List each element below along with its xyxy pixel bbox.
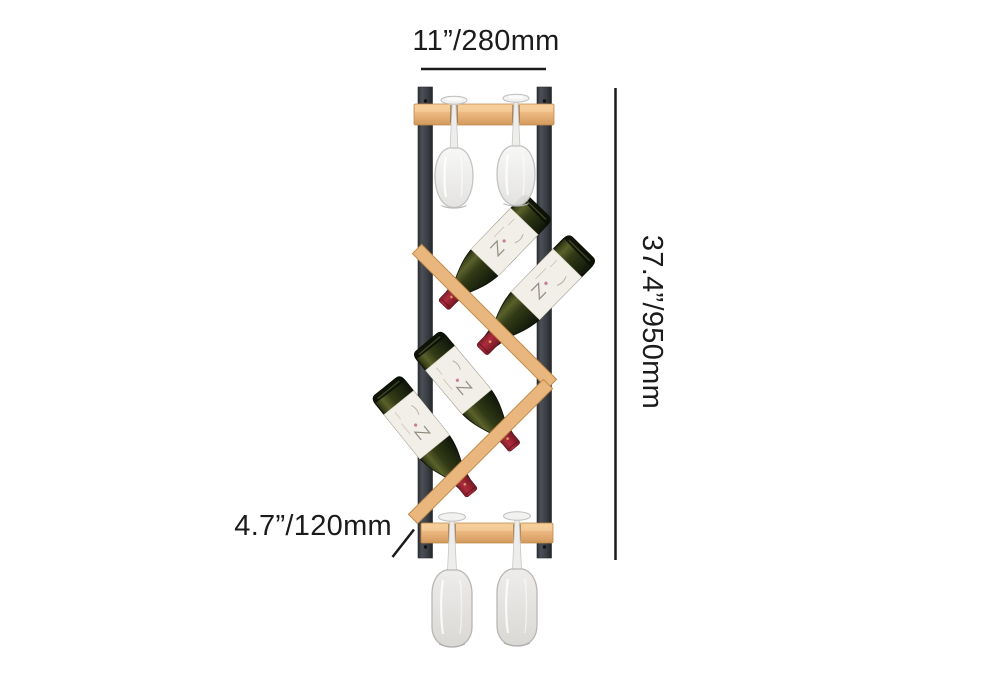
top-shelf [414, 104, 554, 125]
left-rail [418, 87, 433, 558]
width-dimension-label: 11”/280mm [336, 25, 636, 58]
screw-icon [424, 545, 427, 548]
product-dimension-diagram: 11”/280mm 37.4”/950mm 4.7”/120mm [0, 0, 1000, 700]
bottom-shelf [421, 523, 553, 543]
screw-icon [543, 99, 546, 102]
wine-rack-illustration [0, 0, 1000, 700]
screw-icon [424, 99, 427, 102]
depth-dimension-tick [393, 530, 415, 558]
depth-dimension-label: 4.7”/120mm [150, 510, 392, 543]
right-rail [537, 87, 552, 558]
height-dimension-label: 37.4”/950mm [632, 172, 672, 472]
screw-icon [543, 545, 546, 548]
